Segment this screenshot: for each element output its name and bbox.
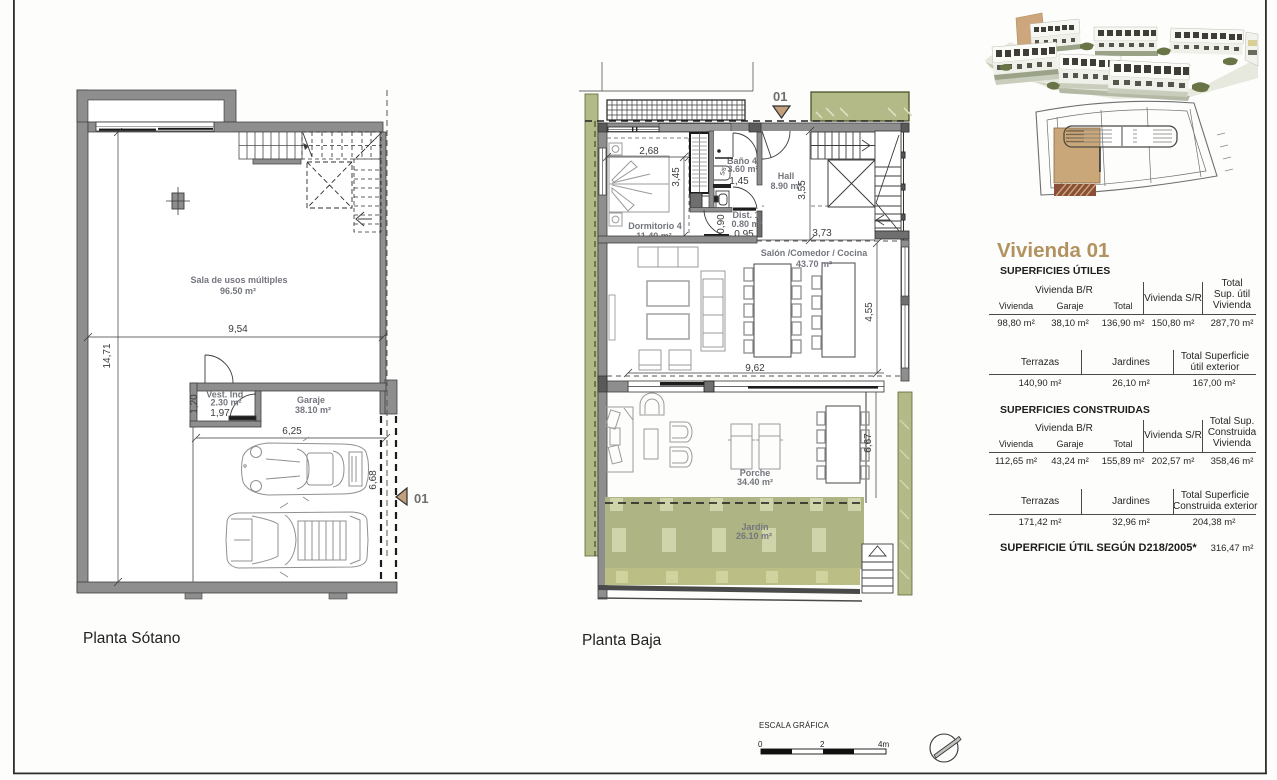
- svg-text:2,68: 2,68: [639, 146, 659, 157]
- svg-text:0: 0: [758, 740, 763, 749]
- svg-text:4,55: 4,55: [864, 302, 875, 322]
- svg-text:34.40 m²: 34.40 m²: [737, 477, 773, 487]
- svg-text:96.50 m²: 96.50 m²: [220, 286, 256, 296]
- svg-text:0.80 m²: 0.80 m²: [731, 219, 762, 229]
- svg-text:26.10 m²: 26.10 m²: [736, 531, 772, 541]
- svg-text:2.30 m²: 2.30 m²: [210, 398, 241, 408]
- svg-text:6,25: 6,25: [282, 426, 302, 437]
- svg-text:2: 2: [820, 740, 825, 749]
- svg-text:43.70 m²: 43.70 m²: [796, 259, 832, 269]
- svg-text:3,45: 3,45: [671, 167, 682, 187]
- svg-text:6,67: 6,67: [863, 433, 874, 453]
- svg-text:ESCALA GRÁFICA: ESCALA GRÁFICA: [759, 721, 830, 730]
- svg-text:4m: 4m: [878, 740, 889, 749]
- svg-text:Sala de usos múltiples: Sala de usos múltiples: [190, 275, 287, 285]
- svg-text:3.60 m²: 3.60 m²: [727, 164, 758, 174]
- svg-text:Hall: Hall: [778, 171, 795, 181]
- svg-text:9,62: 9,62: [745, 363, 765, 374]
- svg-text:1,97: 1,97: [210, 408, 230, 419]
- svg-text:14,71: 14,71: [102, 343, 113, 368]
- svg-text:01: 01: [414, 491, 428, 506]
- svg-text:38.10 m²: 38.10 m²: [295, 405, 331, 415]
- svg-text:1,20: 1,20: [189, 394, 200, 414]
- svg-text:Planta Baja: Planta Baja: [582, 632, 662, 649]
- svg-text:3,55: 3,55: [797, 180, 808, 200]
- svg-text:Planta Sótano: Planta Sótano: [83, 630, 180, 647]
- svg-text:Garaje: Garaje: [297, 395, 325, 405]
- svg-text:Dormitorio 4: Dormitorio 4: [628, 221, 682, 231]
- svg-text:6,68: 6,68: [368, 470, 379, 490]
- svg-text:01: 01: [773, 89, 787, 104]
- svg-text:9,54: 9,54: [228, 324, 248, 335]
- svg-text:1,45: 1,45: [729, 176, 749, 187]
- svg-text:0,90: 0,90: [716, 214, 727, 234]
- svg-text:Salón /Comedor / Cocina: Salón /Comedor / Cocina: [761, 248, 869, 258]
- svg-text:3,73: 3,73: [812, 228, 832, 239]
